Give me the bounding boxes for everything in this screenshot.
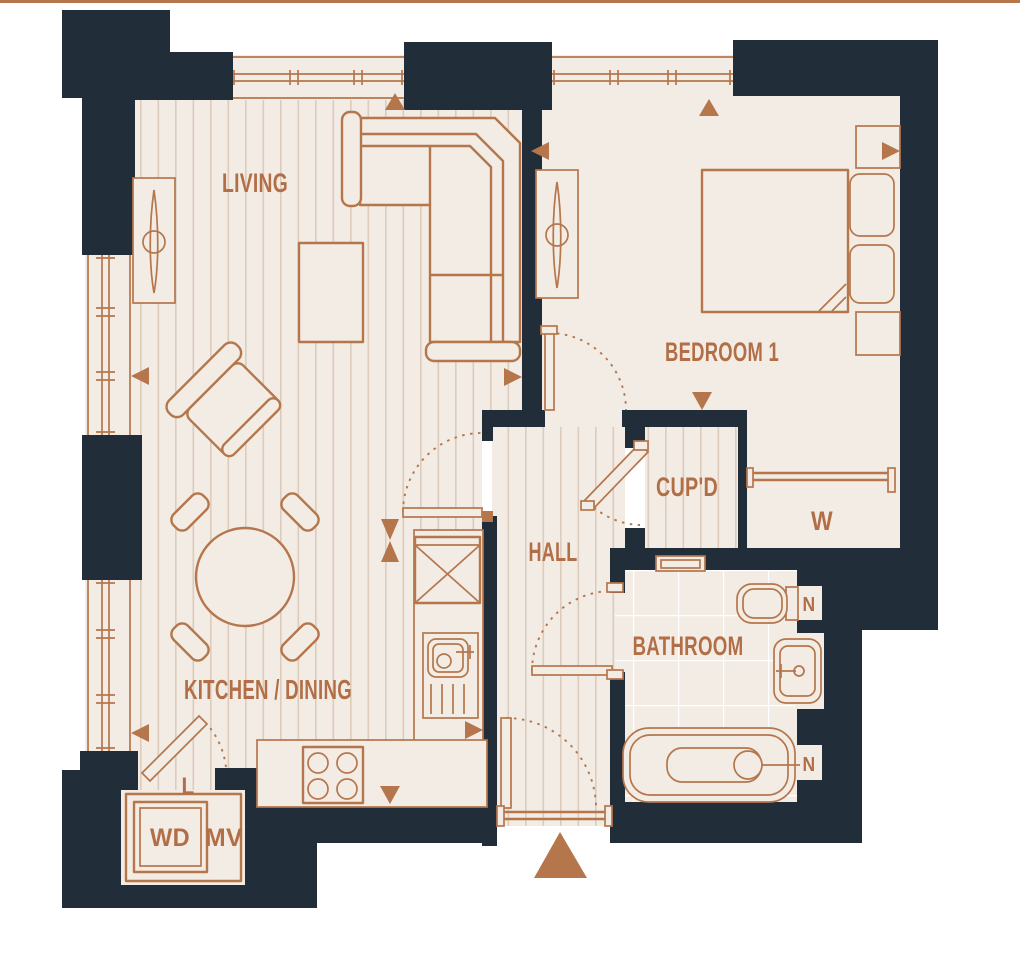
floor-entry-threshold (497, 788, 612, 826)
label-cupboard: CUP'D (656, 472, 718, 502)
label-hall: HALL (529, 537, 578, 567)
radiator-bedroom (536, 170, 578, 298)
wall-segment (482, 427, 493, 441)
toilet (737, 584, 798, 623)
wall-segment (257, 805, 497, 843)
label-living: LIVING (222, 168, 288, 198)
kitchen-counter-right (414, 530, 483, 743)
sofa-armrest (342, 112, 361, 206)
wall-segment (738, 427, 747, 548)
kitchen-counter-bottom (257, 740, 487, 807)
wall-segment (610, 672, 625, 812)
bathtub (623, 728, 800, 802)
wall-segment (900, 95, 938, 570)
wall-segment (404, 42, 552, 110)
radiator-living (133, 178, 175, 303)
label-bedroom1: BEDROOM 1 (665, 337, 779, 367)
coffee-table (299, 243, 363, 342)
floor-plan-page: LIVING BEDROOM 1 CUP'D HALL BATHROOM KIT… (0, 0, 1020, 966)
wall-segment (62, 770, 121, 908)
nightstand (856, 312, 900, 355)
label-niche-bath: N (803, 754, 816, 776)
nightstand (856, 126, 900, 168)
window-living-left (85, 255, 133, 435)
wall-segment (482, 410, 545, 427)
pillow (850, 174, 894, 236)
label-niche-toilet: N (803, 594, 816, 616)
floor-hall (492, 410, 625, 812)
bathroom-sink (774, 639, 821, 703)
label-kitchen-dining: KITCHEN / DINING (184, 674, 352, 705)
label-bathroom: BATHROOM (633, 631, 744, 661)
sofa-armrest (426, 342, 520, 361)
floor-plan: LIVING BEDROOM 1 CUP'D HALL BATHROOM KIT… (0, 0, 1020, 966)
wall-segment (82, 98, 135, 255)
dining-table (196, 528, 294, 626)
wall-segment (622, 410, 747, 427)
page-top-rule (0, 0, 1020, 3)
label-linen: L (182, 773, 195, 800)
window-living-top (233, 55, 404, 100)
window-bedroom-top (552, 55, 733, 95)
label-washer-dryer: WD (150, 824, 190, 852)
wall-segment (82, 52, 233, 100)
towel-radiator (656, 556, 705, 571)
wall-segment (82, 435, 142, 580)
label-wardrobe: W (811, 506, 833, 536)
label-vent: MV (205, 824, 243, 852)
pillow (850, 245, 894, 303)
wall-segment (733, 40, 938, 96)
window-kitchen-left (85, 580, 133, 751)
